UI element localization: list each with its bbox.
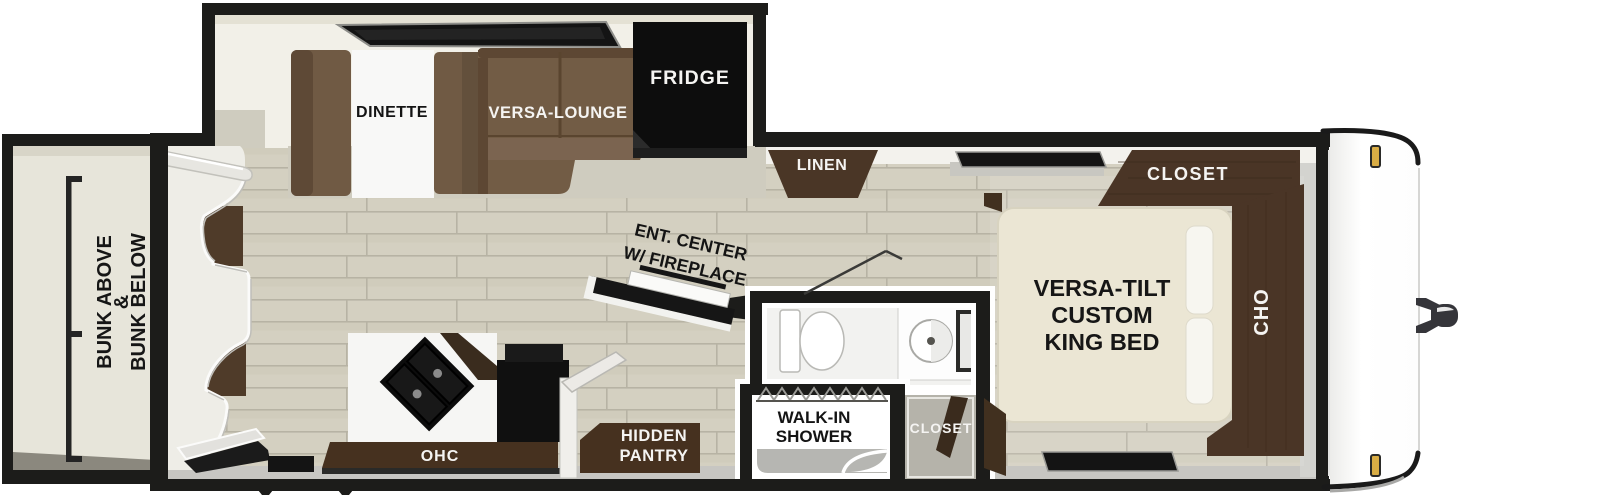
svg-text:SHOWER: SHOWER: [776, 427, 853, 446]
svg-text:FRIDGE: FRIDGE: [650, 67, 730, 89]
svg-text:PANTRY: PANTRY: [620, 447, 689, 465]
svg-text:VERSA-LOUNGE: VERSA-LOUNGE: [489, 104, 628, 122]
svg-text:CUSTOM: CUSTOM: [1051, 302, 1152, 328]
svg-text:VERSA-TILT: VERSA-TILT: [1034, 275, 1171, 301]
svg-text:CLOSET: CLOSET: [910, 420, 973, 436]
svg-text:CLOSET: CLOSET: [1147, 164, 1229, 184]
svg-text:OHC: OHC: [421, 448, 460, 465]
svg-text:LINEN: LINEN: [797, 157, 848, 174]
svg-text:DINETTE: DINETTE: [356, 104, 428, 121]
svg-text:WALK-IN: WALK-IN: [778, 408, 851, 427]
svg-text:BUNK BELOW: BUNK BELOW: [128, 233, 150, 371]
svg-text:CHO: CHO: [1251, 288, 1273, 335]
svg-text:HIDDEN: HIDDEN: [621, 427, 687, 445]
svg-text:KING BED: KING BED: [1045, 329, 1160, 355]
